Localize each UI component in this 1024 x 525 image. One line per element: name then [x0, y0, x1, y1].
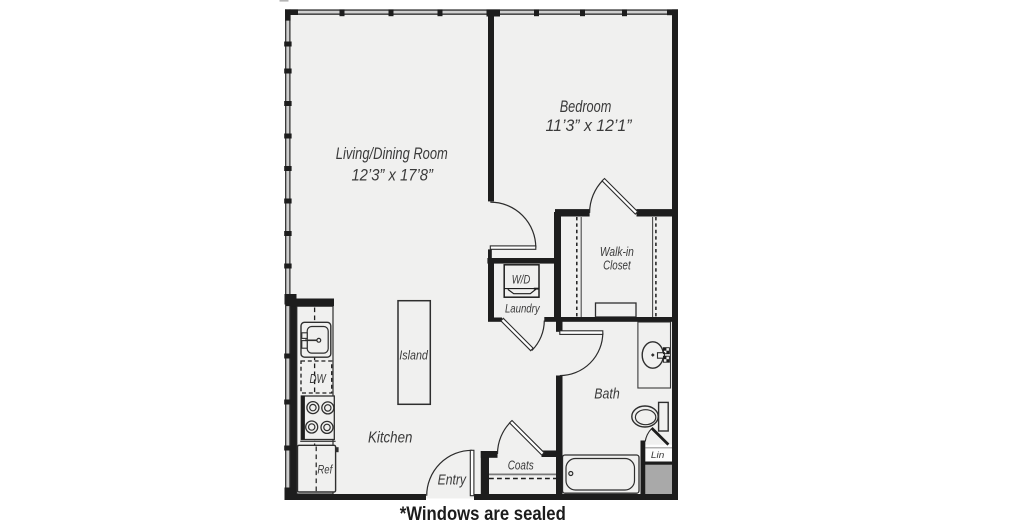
svg-text:Island: Island: [399, 348, 428, 363]
svg-text:Living/Dining Room: Living/Dining Room: [336, 145, 448, 163]
svg-text:Entry: Entry: [438, 472, 467, 488]
svg-text:Bath: Bath: [594, 387, 619, 403]
svg-text:W/D: W/D: [512, 272, 531, 286]
svg-text:Lin: Lin: [651, 450, 664, 461]
svg-text:*Windows are sealed: *Windows are sealed: [400, 504, 566, 525]
svg-text:Coats: Coats: [508, 458, 534, 473]
svg-text:Kitchen: Kitchen: [368, 429, 412, 446]
svg-text:Ref: Ref: [317, 465, 333, 477]
svg-text:Closet: Closet: [603, 257, 632, 272]
svg-text:Bedroom: Bedroom: [560, 98, 612, 116]
svg-text:11’3” x 12’1”: 11’3” x 12’1”: [546, 117, 633, 135]
svg-text:12’3” x 17’8”: 12’3” x 17’8”: [351, 166, 434, 184]
svg-text:DW: DW: [309, 371, 327, 386]
svg-text:Laundry: Laundry: [505, 301, 540, 315]
